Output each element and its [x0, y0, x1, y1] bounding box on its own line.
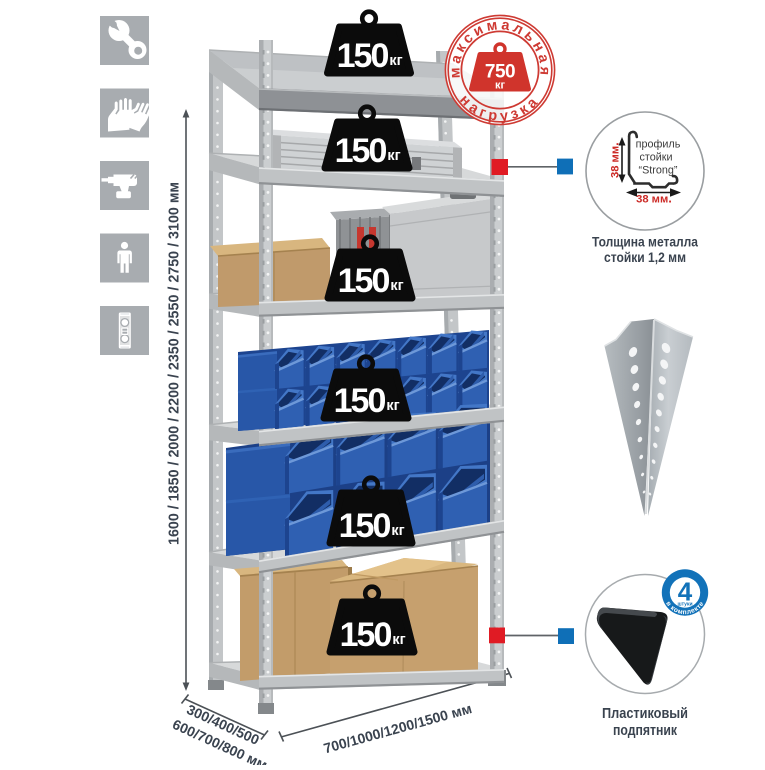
svg-text:Пластиковый: Пластиковый	[602, 706, 688, 722]
svg-text:кг: кг	[495, 80, 506, 92]
svg-text:кг: кг	[387, 148, 400, 164]
svg-text:“Strong”: “Strong”	[638, 165, 677, 177]
svg-text:38 мм.: 38 мм.	[607, 142, 622, 178]
svg-text:150: 150	[340, 616, 392, 654]
svg-text:150: 150	[338, 262, 390, 300]
svg-text:150: 150	[339, 507, 391, 545]
svg-text:кг: кг	[386, 398, 399, 414]
svg-text:кг: кг	[392, 632, 405, 648]
svg-text:штуки: штуки	[677, 602, 692, 608]
svg-text:Толщина металла: Толщина металла	[592, 235, 698, 251]
svg-text:150: 150	[335, 132, 387, 170]
svg-text:подпятник: подпятник	[613, 723, 677, 739]
svg-text:профиль: профиль	[636, 139, 681, 151]
svg-text:1600 / 1850 / 2000 / 2200 / 23: 1600 / 1850 / 2000 / 2200 / 2350 / 2550 …	[167, 182, 183, 545]
svg-text:кг: кг	[391, 523, 404, 539]
svg-text:стойки 1,2 мм: стойки 1,2 мм	[604, 250, 686, 266]
svg-text:кг: кг	[390, 278, 403, 294]
svg-text:150: 150	[334, 382, 386, 420]
svg-text:кг: кг	[389, 53, 402, 69]
svg-text:150: 150	[337, 37, 389, 75]
svg-text:38 мм.: 38 мм.	[636, 191, 672, 206]
svg-text:стойки: стойки	[639, 152, 672, 164]
